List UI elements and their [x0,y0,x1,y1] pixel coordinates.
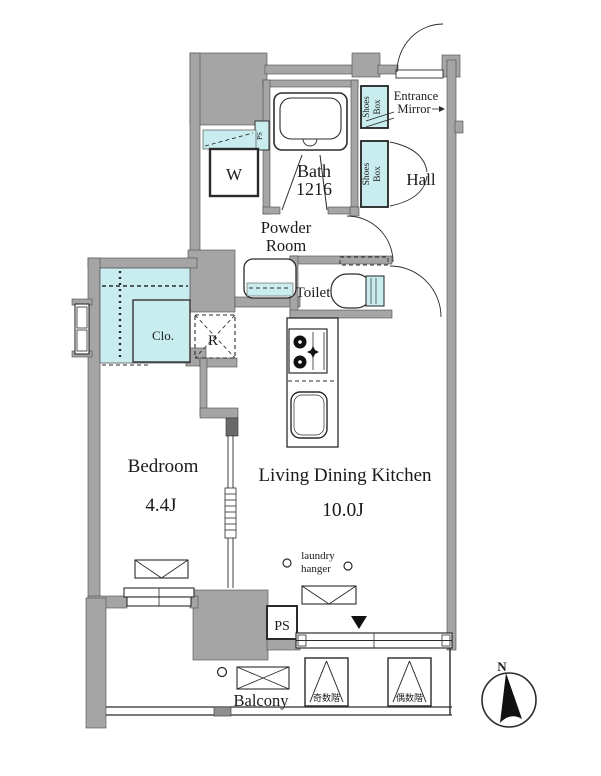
wall [352,53,380,77]
wall [88,258,197,268]
shoes-box-upper-word2: Box [372,99,382,115]
ldk-label: Living Dining Kitchen [258,465,432,486]
wall [190,53,267,125]
laundry-hanger-label-1: laundry [301,550,335,562]
powder-room-door-arc [347,216,393,262]
bedroom-size-label: 4.4J [145,495,176,516]
ps-label: PS [274,619,290,634]
ldk-cabinet [302,586,356,604]
kitchen [287,318,338,447]
toilet-door-arc [390,266,441,317]
bedroom-cabinet [135,560,188,578]
shoes-box-lower-word1: Shoes [362,162,372,185]
bedroom-label: Bedroom [128,456,199,477]
ldk-size-label: 10.0J [322,500,364,521]
wall [193,590,268,660]
closet-label: Clo. [152,328,174,343]
entrance-door-leaf [396,70,443,78]
wall [88,258,100,608]
wall [263,207,280,214]
powder-room-label-1: Powder [261,218,312,237]
entrance-hall: Shoes Box Shoes Box Entrance Mirror Hall [347,86,445,262]
entrance-mirror-label-1: Entrance [394,89,439,103]
wall [263,80,358,87]
stove-burner-center [298,360,302,364]
floor-plan: PS Bath 1216 W Powder Room Shoes Box Sho… [0,0,601,776]
wall [350,207,359,216]
bath-label: Bath [297,161,331,181]
partition-door-track [225,488,236,538]
bathtub-inner [280,98,341,139]
wall [200,358,207,415]
closet: Clo. [100,268,190,365]
balcony: Balcony 奇数階 偶数階 [106,648,452,716]
laundry-hanger-hook [283,559,291,567]
stove-burner-center [298,340,302,344]
evacuation-hatch-even-label: 偶数階 [396,692,423,703]
wall [86,598,106,728]
entrance-door-arc [397,24,443,72]
wall [351,80,358,214]
toilet-room: Toilet [296,257,441,317]
compass: N [482,659,536,727]
shoes-box-upper-word1: Shoes [361,96,371,118]
wall [265,65,355,74]
washbasin-bowl [247,283,293,296]
north-needle [500,673,522,723]
toilet-label: Toilet [296,285,332,301]
hall-label: Hall [406,170,436,189]
balcony-access-marker [351,616,367,629]
powder-room-label-2: Room [266,236,307,255]
entrance-door [396,24,443,78]
wall [190,53,200,262]
washing-machine-label: W [226,165,243,184]
balcony-drain [214,707,231,716]
evacuation-hatch-odd-label: 奇数階 [313,692,340,703]
bath-size-label: 1216 [296,179,332,199]
refrigerator-space: R [195,315,235,358]
kitchen-sink [291,392,327,438]
floor-plan-page: PS Bath 1216 W Powder Room Shoes Box Sho… [0,0,601,776]
wall-end-cap [226,418,238,436]
wall [200,408,238,418]
stove [289,329,327,373]
washer-pan [203,130,256,149]
mirror-arrow-head [439,106,445,112]
laundry-hanger-hook [344,562,352,570]
wall [447,60,456,650]
wall [455,121,463,133]
refrigerator-label: R [208,333,218,349]
wall [378,65,398,74]
wall [290,310,392,318]
shoes-box-lower-word2: Box [373,166,383,182]
shoes-box-door-swing [390,142,427,172]
bath-ps-label: PS [256,132,264,140]
laundry-hanger-label-2: hanger [301,563,331,575]
north-label: N [497,659,507,674]
balcony-label: Balcony [234,691,290,710]
balcony-hook [218,668,227,677]
toilet-tank [366,276,384,306]
living-dining-kitchen: Living Dining Kitchen 10.0J laundry hang… [258,465,452,648]
entrance-mirror-label-2: Mirror [397,102,431,116]
